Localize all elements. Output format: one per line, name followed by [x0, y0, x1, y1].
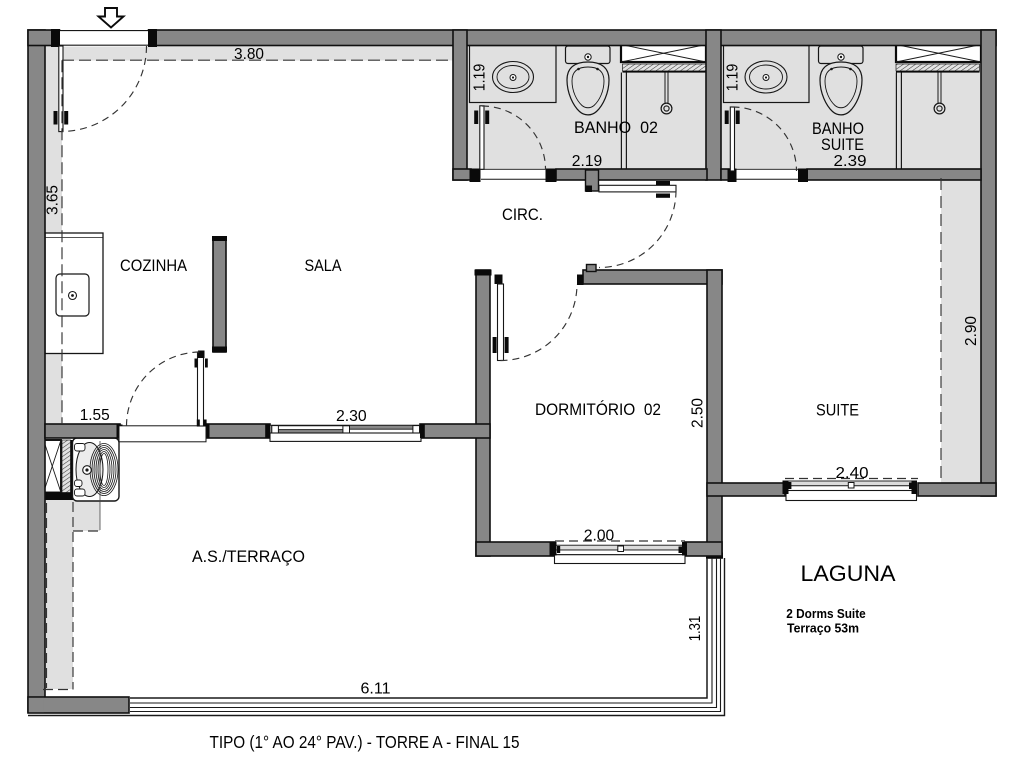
svg-text:SUITE: SUITE — [816, 402, 859, 420]
svg-text:2.40: 2.40 — [836, 465, 869, 482]
svg-text:1.19: 1.19 — [472, 64, 489, 92]
svg-text:2.90: 2.90 — [963, 316, 980, 346]
svg-text:DORMITÓRIO 02: DORMITÓRIO 02 — [535, 400, 661, 419]
svg-text:2 Dorms Suite: 2 Dorms Suite — [786, 607, 865, 621]
svg-text:3.80: 3.80 — [234, 46, 264, 63]
svg-text:BANHO 02: BANHO 02 — [574, 119, 658, 137]
svg-text:3.65: 3.65 — [45, 185, 62, 215]
svg-text:TIPO (1° AO 24° PAV.) - TORRE: TIPO (1° AO 24° PAV.) - TORRE A - FINAL … — [210, 732, 520, 752]
svg-text:2.50: 2.50 — [690, 398, 707, 428]
svg-text:CIRC.: CIRC. — [502, 206, 543, 224]
svg-text:1.55: 1.55 — [80, 407, 110, 424]
svg-text:2.19: 2.19 — [572, 153, 603, 170]
svg-text:2.30: 2.30 — [336, 408, 367, 425]
svg-text:2.00: 2.00 — [584, 528, 614, 545]
svg-text:COZINHA: COZINHA — [120, 257, 187, 275]
svg-text:SUITE: SUITE — [821, 136, 864, 154]
svg-text:2.39: 2.39 — [834, 153, 867, 170]
svg-text:Terraço 53m: Terraço 53m — [787, 622, 859, 636]
svg-text:A.S./TERRAÇO: A.S./TERRAÇO — [192, 548, 305, 566]
svg-text:1.19: 1.19 — [725, 64, 742, 92]
svg-text:SALA: SALA — [305, 257, 342, 275]
svg-text:1.31: 1.31 — [687, 616, 704, 642]
svg-text:LAGUNA: LAGUNA — [801, 561, 896, 586]
svg-text:6.11: 6.11 — [361, 681, 391, 698]
